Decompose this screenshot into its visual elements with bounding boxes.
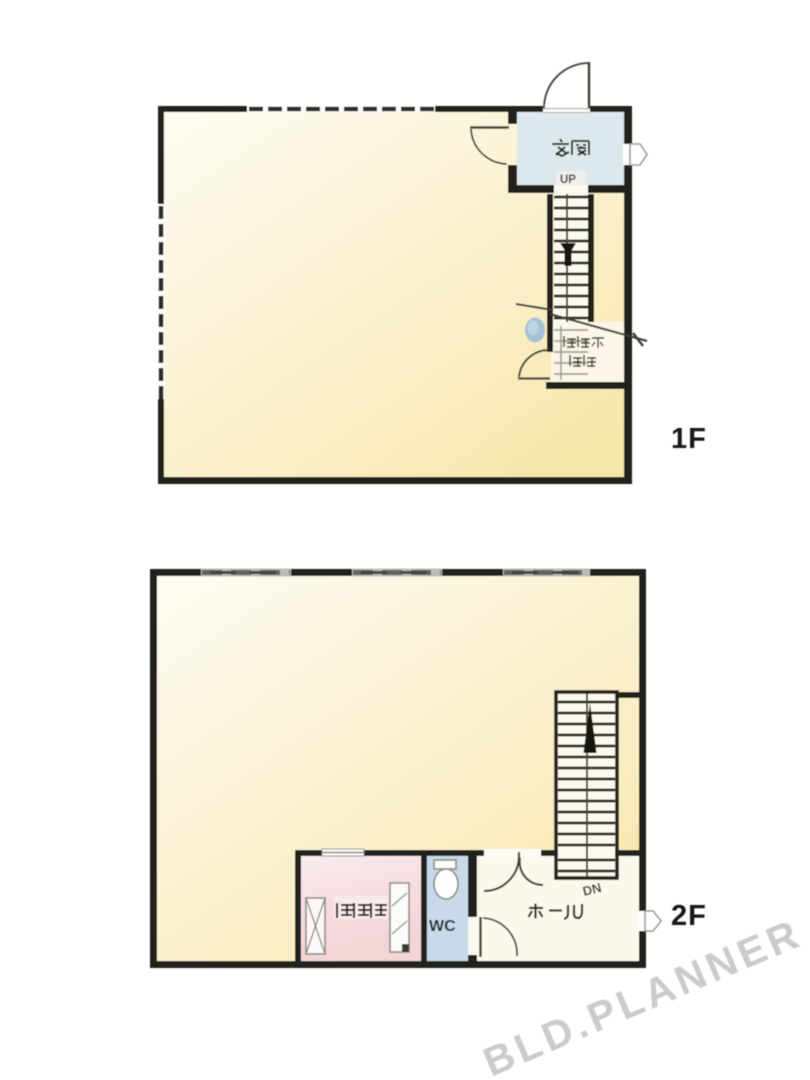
svg-text:WC: WC	[429, 918, 456, 935]
svg-text:UP: UP	[560, 174, 576, 186]
svg-text:2F: 2F	[671, 900, 707, 932]
svg-text:1F: 1F	[671, 423, 707, 455]
